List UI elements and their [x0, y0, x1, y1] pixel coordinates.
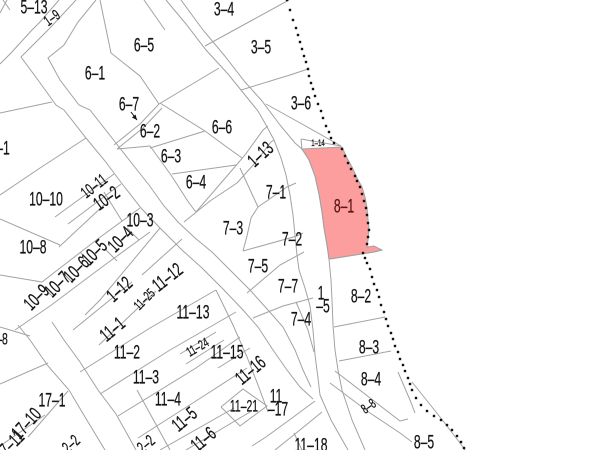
svg-text:11–3: 11–3 — [133, 368, 159, 388]
svg-text:6–5: 6–5 — [134, 36, 154, 56]
svg-text:11–13: 11–13 — [177, 303, 210, 323]
svg-text:8–4: 8–4 — [361, 370, 381, 390]
svg-text:11–21: 11–21 — [230, 397, 258, 415]
svg-text:11–15: 11–15 — [211, 343, 244, 363]
svg-text:10–3: 10–3 — [126, 211, 153, 231]
svg-text:6–2: 6–2 — [140, 122, 160, 142]
svg-text:3–6: 3–6 — [291, 94, 311, 114]
svg-text:10–8: 10–8 — [19, 238, 46, 258]
svg-text:6–7: 6–7 — [119, 95, 139, 115]
svg-text:8–1: 8–1 — [334, 197, 354, 217]
svg-text:7–1: 7–1 — [266, 183, 286, 203]
svg-text:7–7: 7–7 — [278, 277, 298, 297]
svg-text:7–2: 7–2 — [282, 230, 302, 250]
svg-text:3–4: 3–4 — [214, 0, 234, 20]
svg-text:7–3: 7–3 — [223, 219, 243, 239]
svg-text:–5: –5 — [316, 297, 330, 317]
svg-text:6–3: 6–3 — [161, 147, 181, 167]
svg-text:11–18: 11–18 — [295, 436, 328, 450]
svg-text:–17: –17 — [268, 400, 288, 420]
svg-text:6–4: 6–4 — [186, 173, 206, 193]
svg-text:3–5: 3–5 — [251, 38, 271, 58]
svg-text:7–4: 7–4 — [291, 310, 311, 330]
svg-text:6–6: 6–6 — [212, 118, 232, 138]
svg-text:8–3: 8–3 — [359, 338, 379, 358]
svg-text:8–5: 8–5 — [414, 433, 434, 450]
svg-text:10–10: 10–10 — [29, 190, 63, 210]
svg-text:11–4: 11–4 — [155, 390, 181, 410]
svg-text:7–5: 7–5 — [248, 257, 268, 277]
svg-text:6–1: 6–1 — [85, 64, 105, 84]
svg-text:–1: –1 — [0, 139, 10, 159]
svg-text:17–1: 17–1 — [38, 391, 65, 411]
svg-text:–8: –8 — [0, 330, 8, 348]
svg-text:8–2: 8–2 — [351, 287, 371, 307]
svg-text:1–14: 1–14 — [311, 138, 325, 149]
svg-text:11–2: 11–2 — [114, 343, 140, 363]
